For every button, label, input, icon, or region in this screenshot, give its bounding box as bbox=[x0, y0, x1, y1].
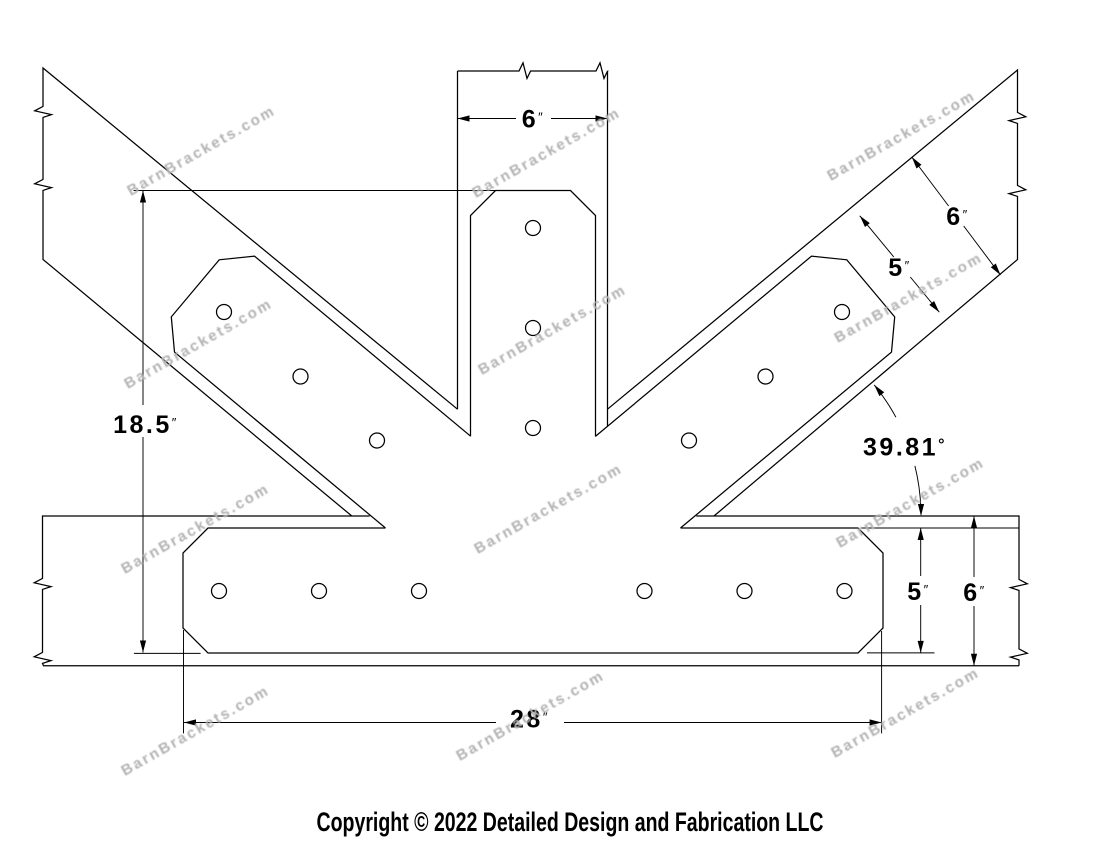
svg-text:18.5″: 18.5″ bbox=[113, 411, 179, 439]
svg-text:Copyright © 2022 Detailed Desi: Copyright © 2022 Detailed Design and Fab… bbox=[317, 807, 824, 837]
svg-text:39.81°: 39.81° bbox=[863, 434, 947, 462]
